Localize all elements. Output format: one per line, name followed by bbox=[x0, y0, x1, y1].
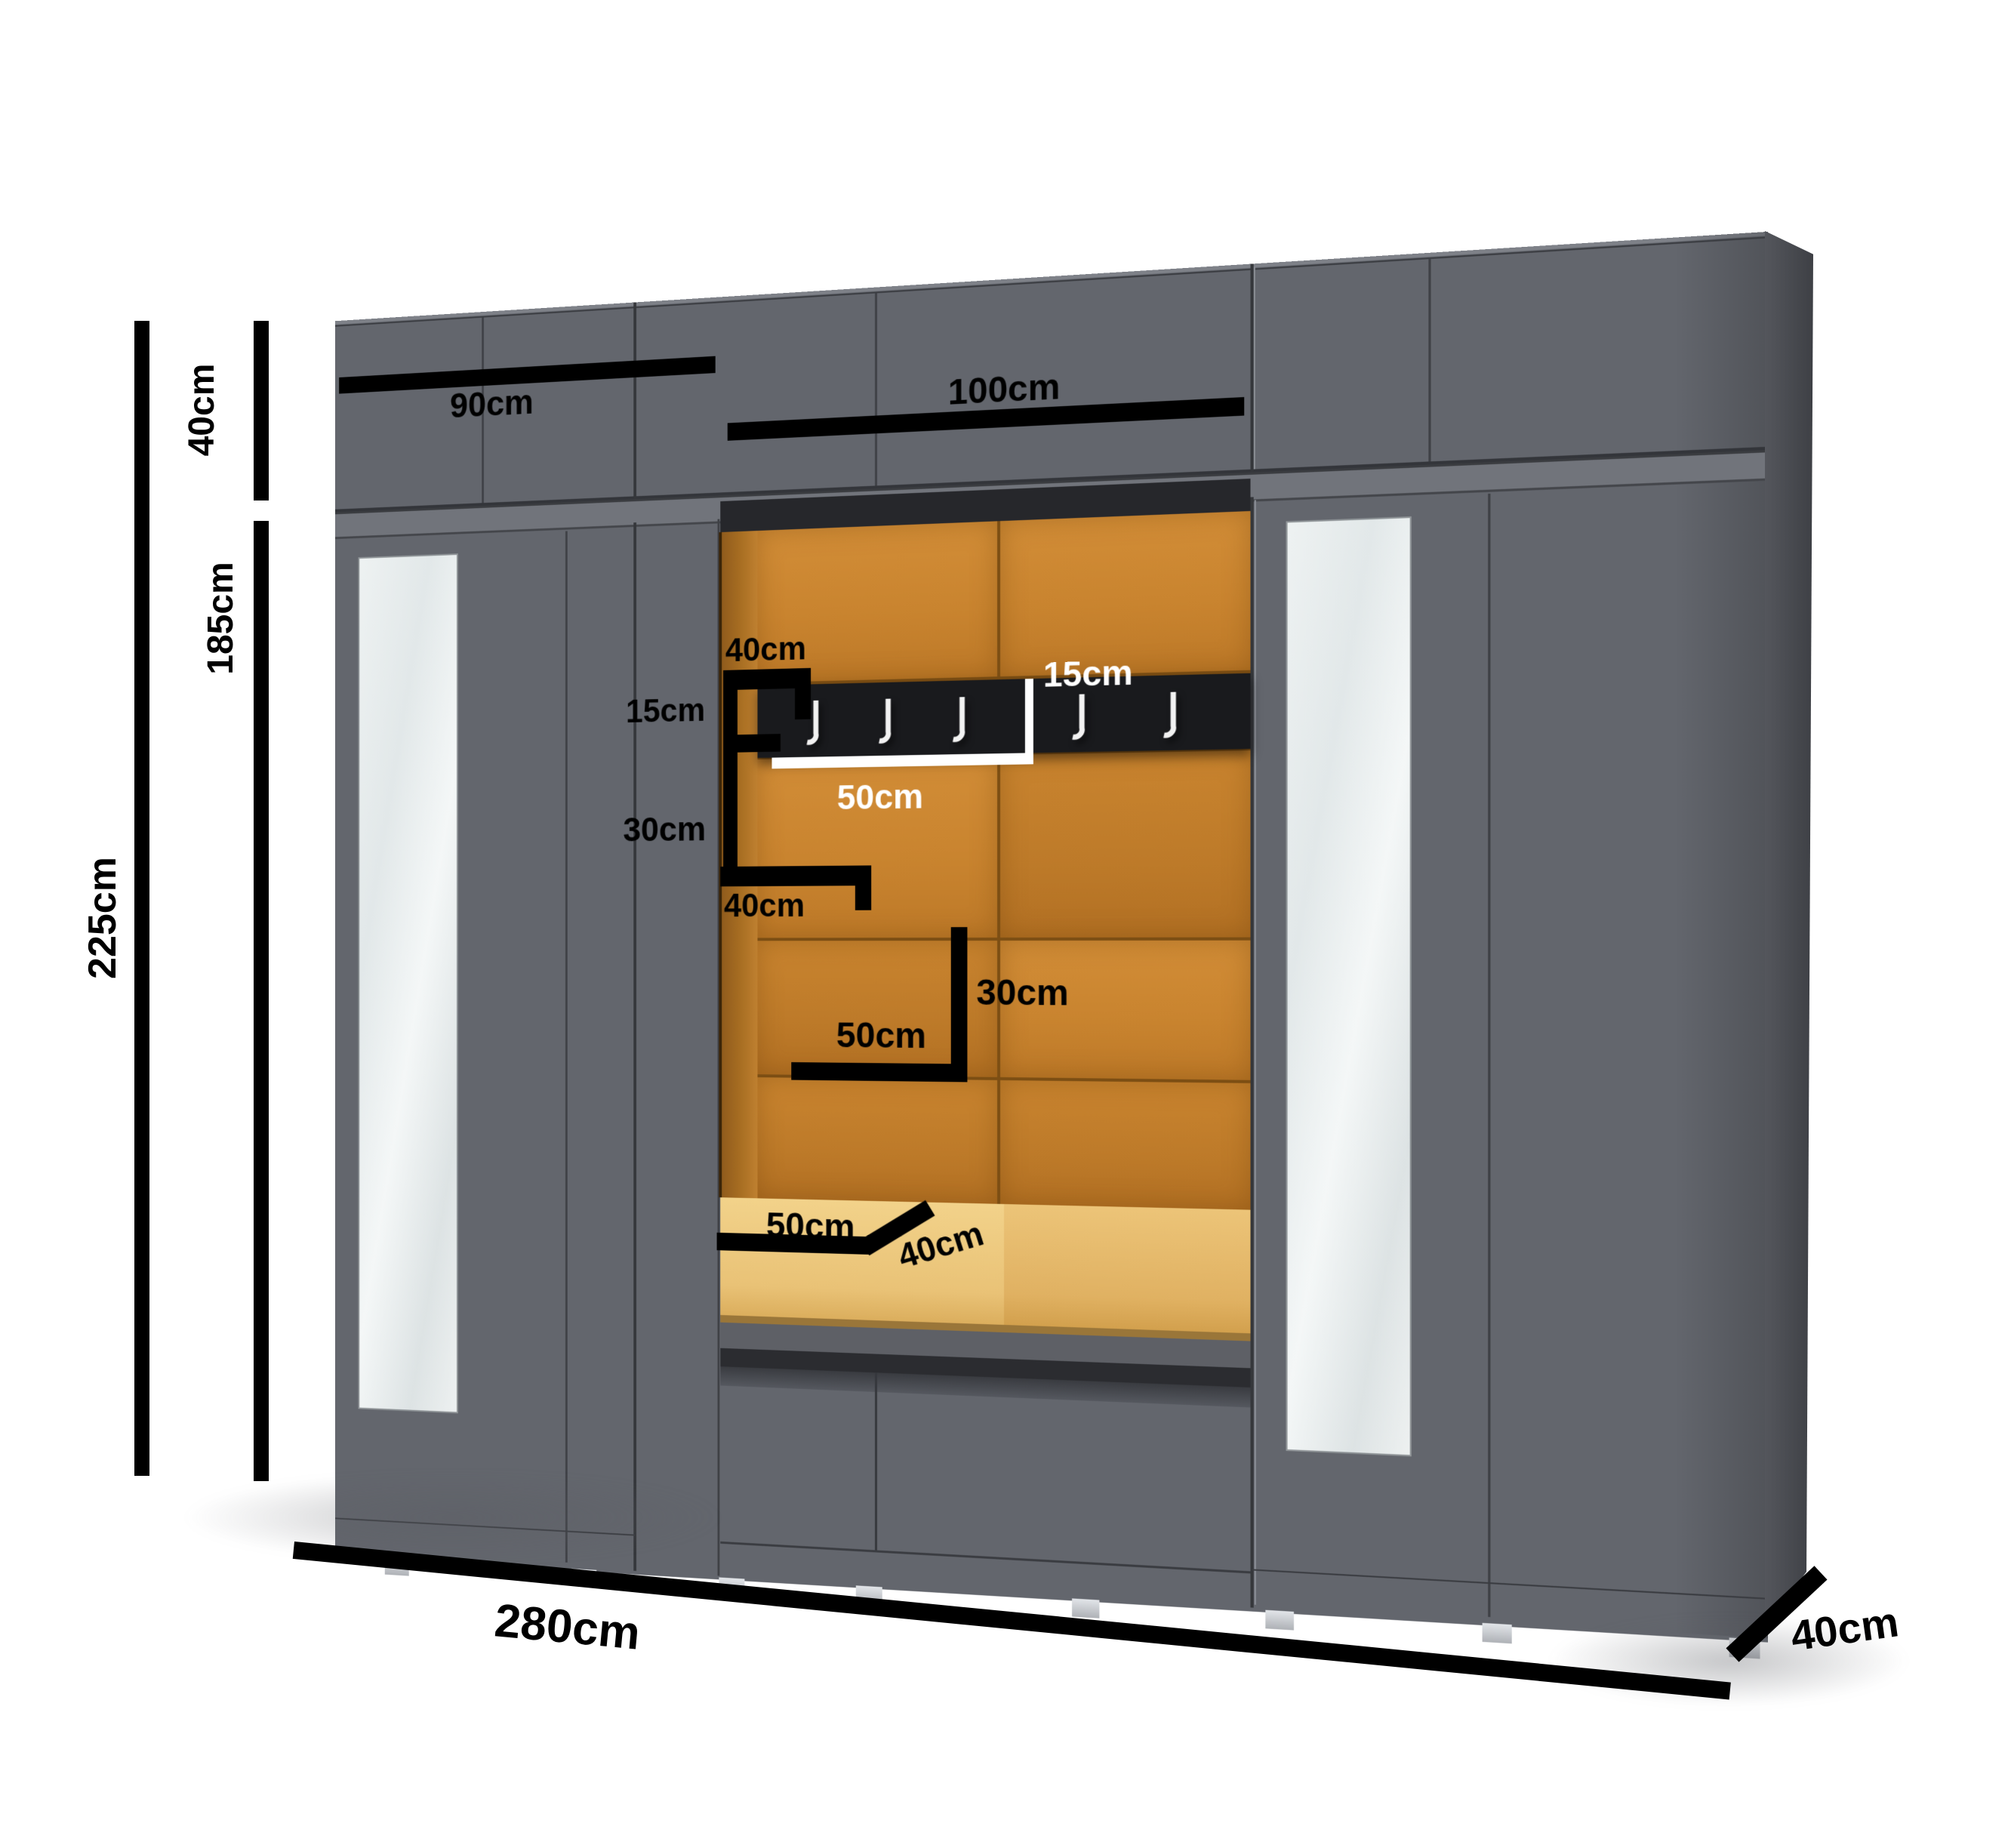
top-section-height-label: 40cm bbox=[184, 334, 220, 485]
seat-cushion bbox=[1004, 1204, 1251, 1341]
inner-shelf-height-line bbox=[951, 927, 968, 1082]
wardrobe-cabinet: 90cm 100cm bbox=[335, 232, 1768, 1671]
drawer-gap bbox=[875, 1372, 877, 1551]
side-gap-bracket bbox=[723, 670, 738, 736]
side-gap-height-label: 15cm bbox=[626, 695, 705, 728]
module-edge-highlight bbox=[1255, 500, 1256, 1604]
hook-rail-section-width-label: 50cm bbox=[837, 779, 923, 815]
side-shelf-bottom-width-label: 40cm bbox=[724, 890, 805, 922]
rail-section-divider bbox=[1025, 679, 1033, 764]
top-section-dimension-line bbox=[254, 321, 269, 500]
upholstered-panel bbox=[1000, 511, 1251, 676]
upholstered-panel bbox=[1000, 1080, 1251, 1210]
right-mirror bbox=[1286, 516, 1412, 1456]
lower-section-dimension-line bbox=[254, 521, 269, 1481]
side-shelf-top-bracket-drop bbox=[795, 688, 811, 719]
upholstered-panel bbox=[757, 1077, 996, 1204]
left-module-width-label: 90cm bbox=[450, 385, 534, 424]
niche-corner-shadow bbox=[719, 532, 722, 1197]
cabinet-side-panel bbox=[1765, 231, 1813, 1680]
hook-rail-height-label: 15cm bbox=[1043, 654, 1133, 691]
upholstered-panel bbox=[1000, 750, 1251, 938]
side-shelf-height-bracket bbox=[723, 747, 738, 867]
module-edge-highlight bbox=[1254, 266, 1255, 469]
side-shelf-height-label: 30cm bbox=[623, 812, 706, 846]
total-height-label: 225cm bbox=[83, 827, 122, 1009]
module-boundary bbox=[1251, 497, 1254, 1607]
door-gap bbox=[1428, 259, 1430, 461]
side-shelf-bottom-bracket-drop bbox=[855, 865, 871, 910]
module-boundary bbox=[633, 522, 636, 1571]
coat-hook-icon bbox=[1070, 691, 1089, 747]
inner-shelf-width-label: 50cm bbox=[836, 1018, 926, 1055]
plinth-foot bbox=[1265, 1610, 1294, 1631]
plinth-foot bbox=[1483, 1623, 1512, 1643]
scene: 90cm 100cm bbox=[0, 0, 2011, 1848]
floor-shadow bbox=[181, 1472, 725, 1563]
left-mirror bbox=[359, 553, 458, 1413]
diagram-page: { "diagram": { "unit": "cm", "labels": {… bbox=[0, 0, 2011, 1848]
middle-module-width-label: 100cm bbox=[948, 369, 1061, 411]
inner-shelf-height-label: 30cm bbox=[976, 975, 1069, 1012]
side-shelf-top-width-label: 40cm bbox=[725, 633, 806, 667]
total-width-label: 280cm bbox=[493, 1597, 642, 1658]
lower-section-height-label: 185cm bbox=[203, 535, 239, 701]
coat-hook-icon bbox=[950, 694, 970, 750]
side-shelf-bottom-bracket bbox=[720, 865, 871, 886]
cabinet-right-shading bbox=[1674, 232, 1767, 1638]
door-gap bbox=[875, 293, 877, 485]
door-gap bbox=[565, 531, 568, 1563]
total-height-dimension-line bbox=[134, 321, 149, 1476]
inner-shelf-width-line bbox=[791, 1062, 967, 1082]
plinth-foot bbox=[1072, 1598, 1099, 1618]
niche-upholstered-wall bbox=[757, 511, 1250, 1210]
door-gap bbox=[1488, 494, 1490, 1617]
coat-hook-icon bbox=[876, 695, 895, 751]
coat-hook-icon bbox=[1161, 688, 1181, 746]
module-boundary bbox=[633, 302, 636, 499]
